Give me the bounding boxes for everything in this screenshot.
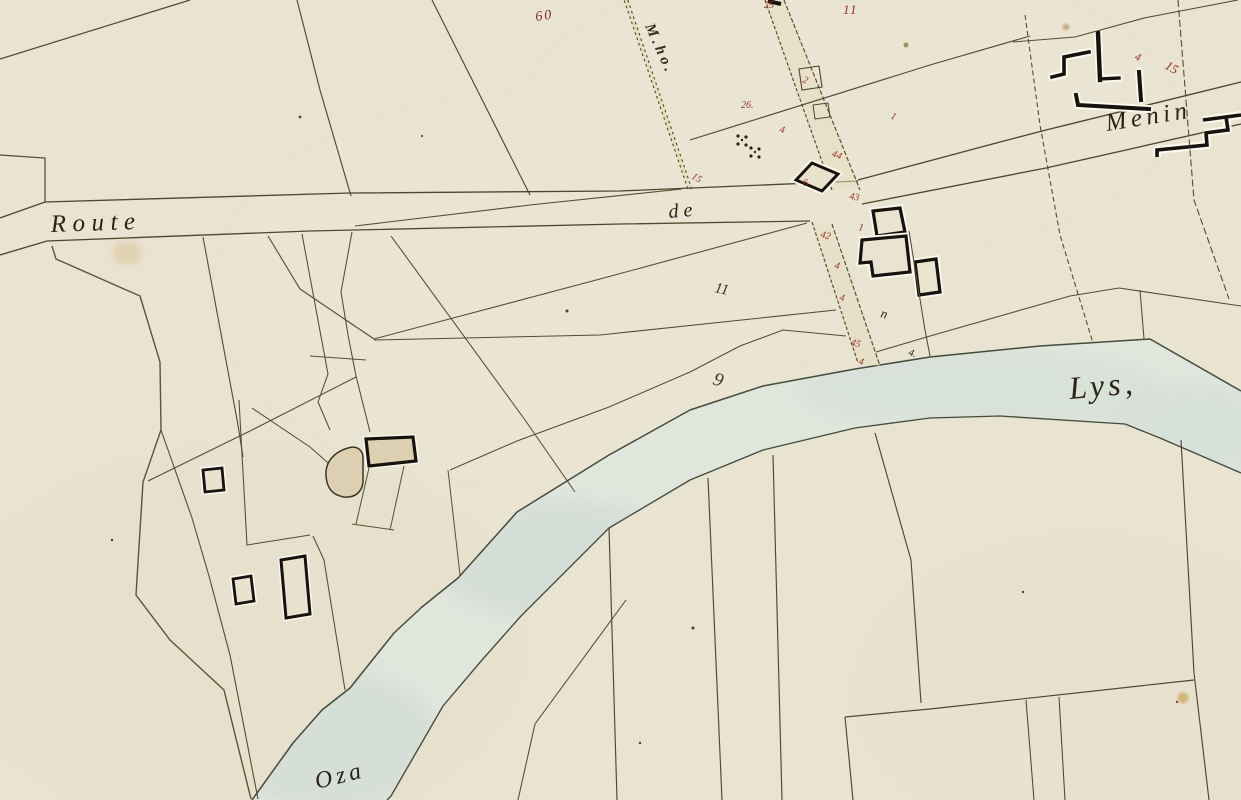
svg-text:26.: 26.	[741, 100, 754, 111]
svg-text:Lys,: Lys,	[1066, 364, 1137, 406]
svg-text:25: 25	[764, 0, 774, 11]
svg-text:43: 43	[848, 191, 860, 204]
svg-text:6: 6	[803, 178, 808, 189]
svg-text:60: 60	[534, 8, 554, 25]
svg-text:11: 11	[843, 2, 858, 17]
svg-text:de: de	[668, 199, 699, 223]
svg-text:Route: Route	[49, 208, 142, 238]
